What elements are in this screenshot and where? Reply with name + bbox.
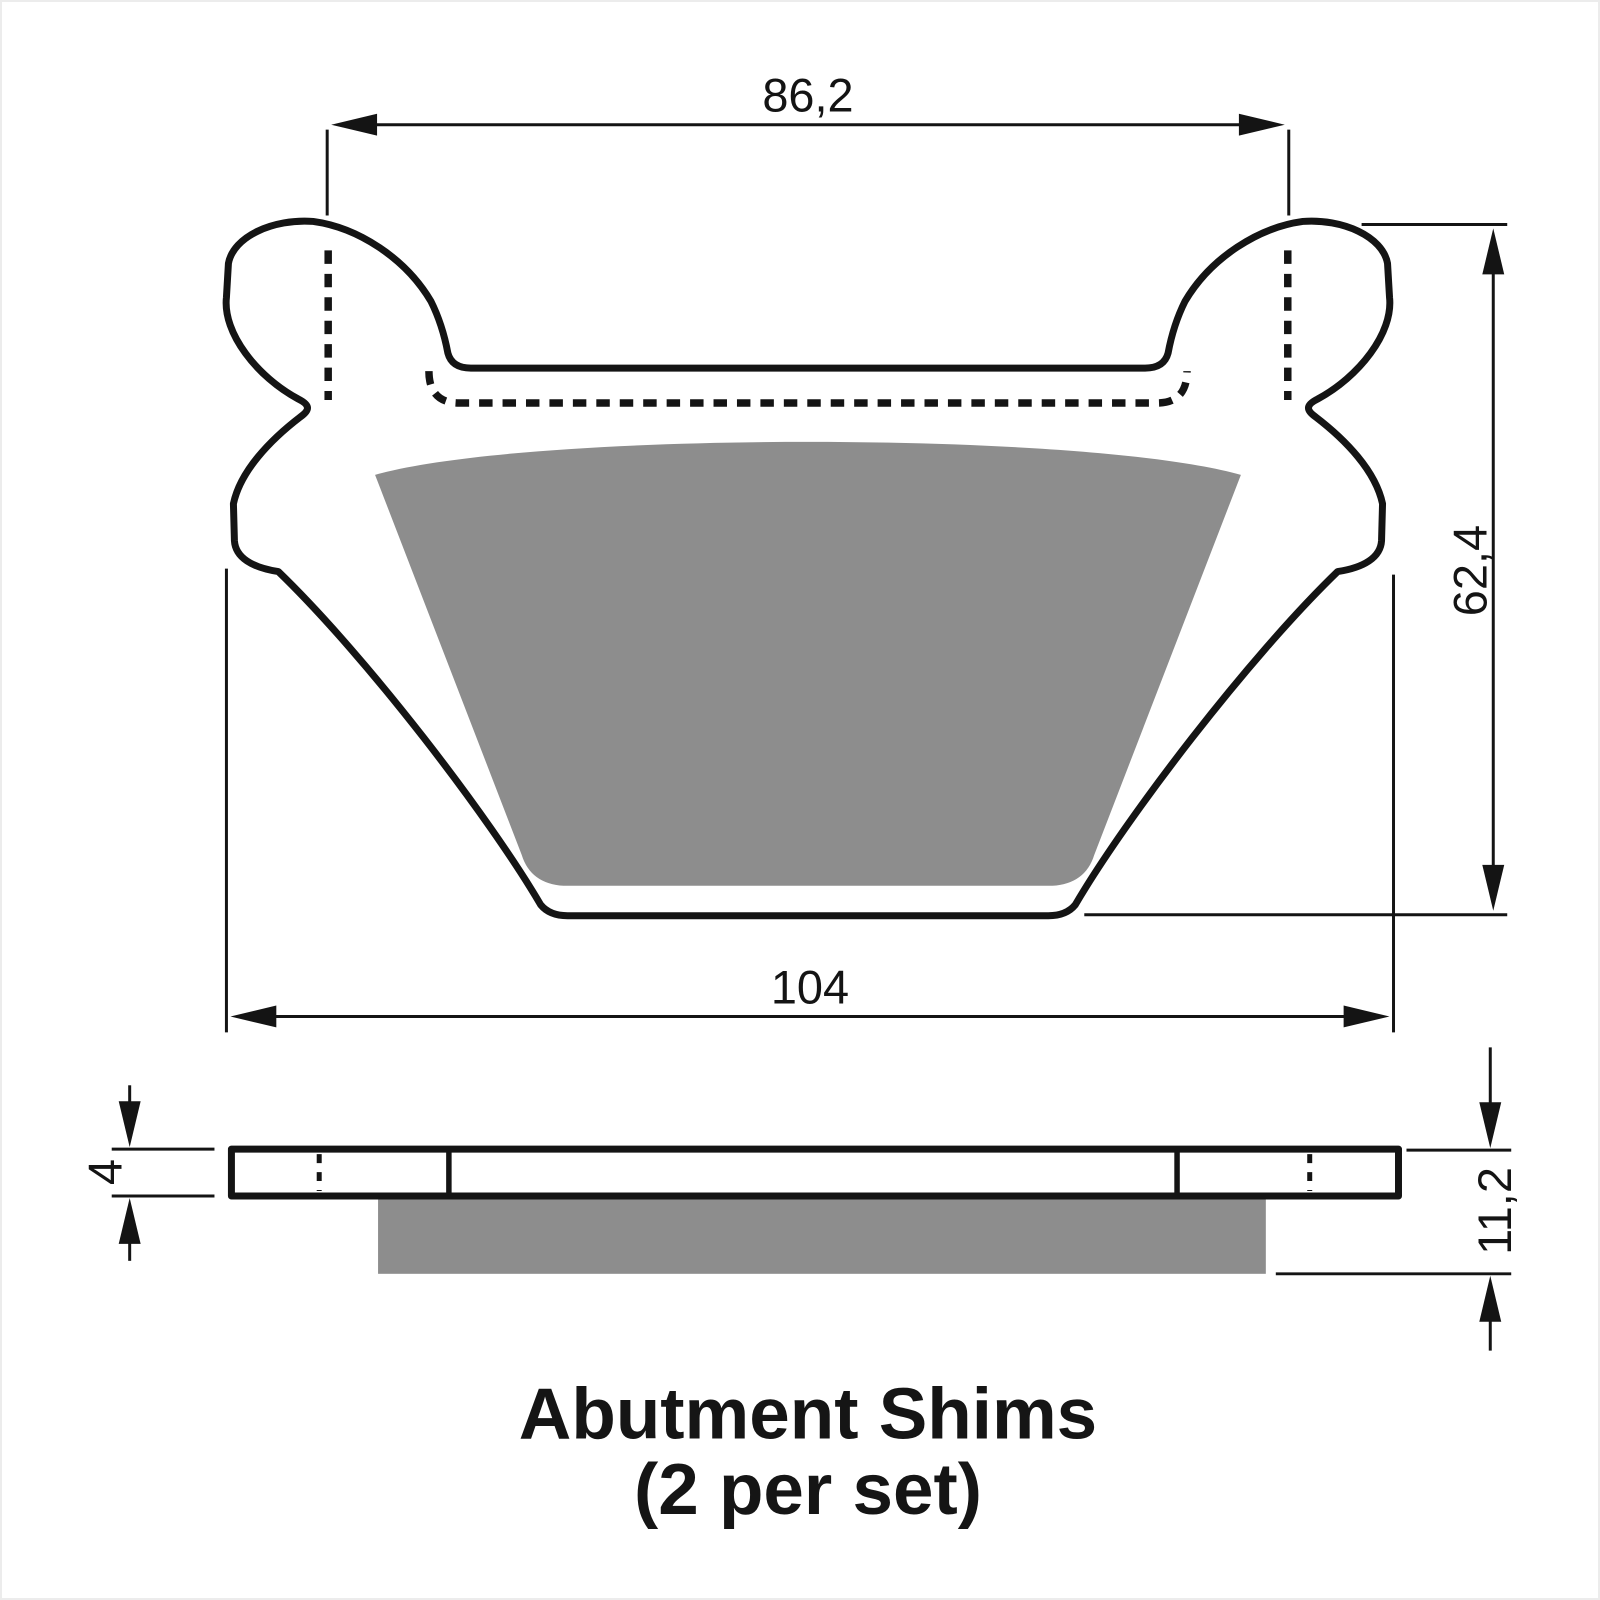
dim-label-total-thickness: 11,2 [1469, 1167, 1521, 1255]
arrowhead-left [331, 114, 377, 136]
title-line2: (2 per set) [634, 1449, 982, 1530]
hidden-shoulder-dashed-line [429, 371, 1187, 403]
title-line1: Abutment Shims [519, 1373, 1097, 1454]
arrowhead-right [1239, 114, 1285, 136]
arrowhead-down [119, 1101, 141, 1147]
arrowhead-bottom [1482, 865, 1504, 911]
dim-label-plate-thickness: 4 [80, 1159, 132, 1185]
dimension-plate-thickness: 4 [80, 1085, 215, 1261]
caption: Abutment Shims (2 per set) [519, 1373, 1097, 1530]
side-view [231, 1149, 1398, 1274]
dim-label-bottom-width: 104 [771, 961, 849, 1013]
diagram-canvas: 86,2 104 62,4 4 [0, 0, 1600, 1600]
arrowhead-down [1479, 1102, 1501, 1148]
arrowhead-right [1344, 1005, 1390, 1027]
arrowhead-top [1482, 228, 1504, 274]
dim-label-overall-height: 62,4 [1444, 525, 1496, 616]
friction-material-top-view [375, 442, 1241, 886]
dimension-top-width: 86,2 [327, 70, 1289, 216]
arrowhead-left [230, 1005, 276, 1027]
top-view [226, 221, 1390, 916]
brake-pad-technical-drawing: 86,2 104 62,4 4 [2, 2, 1598, 1598]
backing-plate-side-view [231, 1149, 1398, 1196]
friction-material-side-view [378, 1196, 1266, 1274]
dim-label-top-width: 86,2 [762, 70, 853, 122]
